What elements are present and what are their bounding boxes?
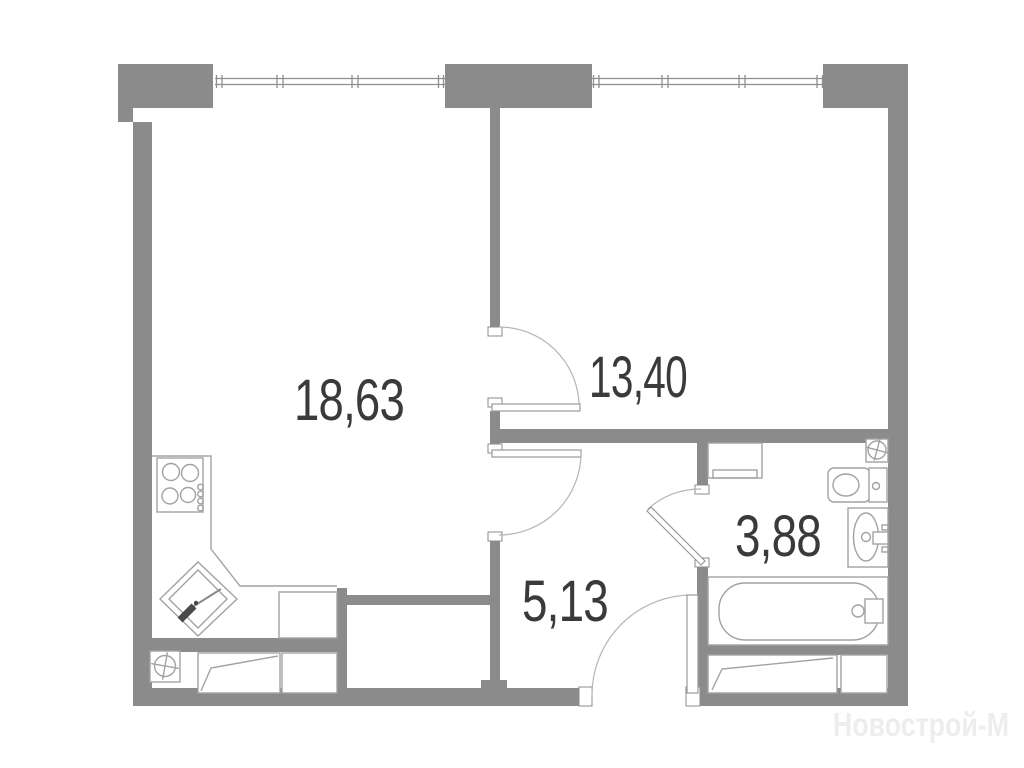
wall-living-bedroom-divider [490,108,500,327]
wall-right [888,108,908,706]
bathroom-door [647,489,705,565]
wall-living-bottom [133,638,347,652]
door-leaf [492,404,580,411]
adjacent-cabinet [841,655,887,693]
wall-entrance-stub [481,680,507,690]
vent-shaft-icon [149,650,181,682]
bed-icon [708,655,837,693]
wall-living-hallway-lower [490,533,500,690]
door-swing-arc [499,453,581,535]
door-swing-arc [648,489,701,509]
door-leaf [492,450,581,457]
washbasin-icon [848,508,888,567]
window-mullion-ticks [594,75,823,88]
door-leaf [647,507,705,565]
bedroom-door [492,327,580,411]
wall-bathroom-left-lower [697,566,708,688]
kitchen-cabinet [279,592,337,638]
tub-faucet [865,599,883,623]
bed-icon [198,653,280,693]
window-mullion-ticks [217,75,444,88]
basin-tap [873,532,888,544]
floor-plan-drawing: 18,63 13,40 3,88 5,13 Новострой-М [0,0,1024,768]
vent-shaft-icon [864,437,891,464]
wall-top-right [823,64,908,108]
kitchen-sink-icon [160,562,237,636]
floor-plan: 18,63 13,40 3,88 5,13 Новострой-М [0,0,1024,768]
window-bedroom [592,75,823,88]
area-label-bedroom: 13,40 [589,345,687,410]
door-swing-arc [499,327,579,404]
wall-shaft-top [342,595,490,605]
living-hallway-door [492,450,581,535]
wall-bathroom-top-stub [697,443,708,487]
washing-machine-icon [708,443,762,478]
window-living-room [215,75,445,88]
developer-watermark: Новострой-М [833,706,1009,743]
wall-top-left-pilaster [118,64,133,122]
area-label-hallway: 5,13 [522,569,608,634]
toilet-icon [828,468,887,502]
wall-top-pier [445,64,592,108]
wall-bedroom-bottom [490,429,888,443]
area-label-bathroom: 3,88 [735,504,821,569]
wall-left [133,122,152,706]
adjacent-cabinet [282,653,337,693]
door-leaf [687,595,698,693]
stove-icon [157,458,203,512]
bathtub-icon [708,577,888,645]
area-label-living-room: 18,63 [294,368,404,433]
faucet-dot [194,601,198,605]
